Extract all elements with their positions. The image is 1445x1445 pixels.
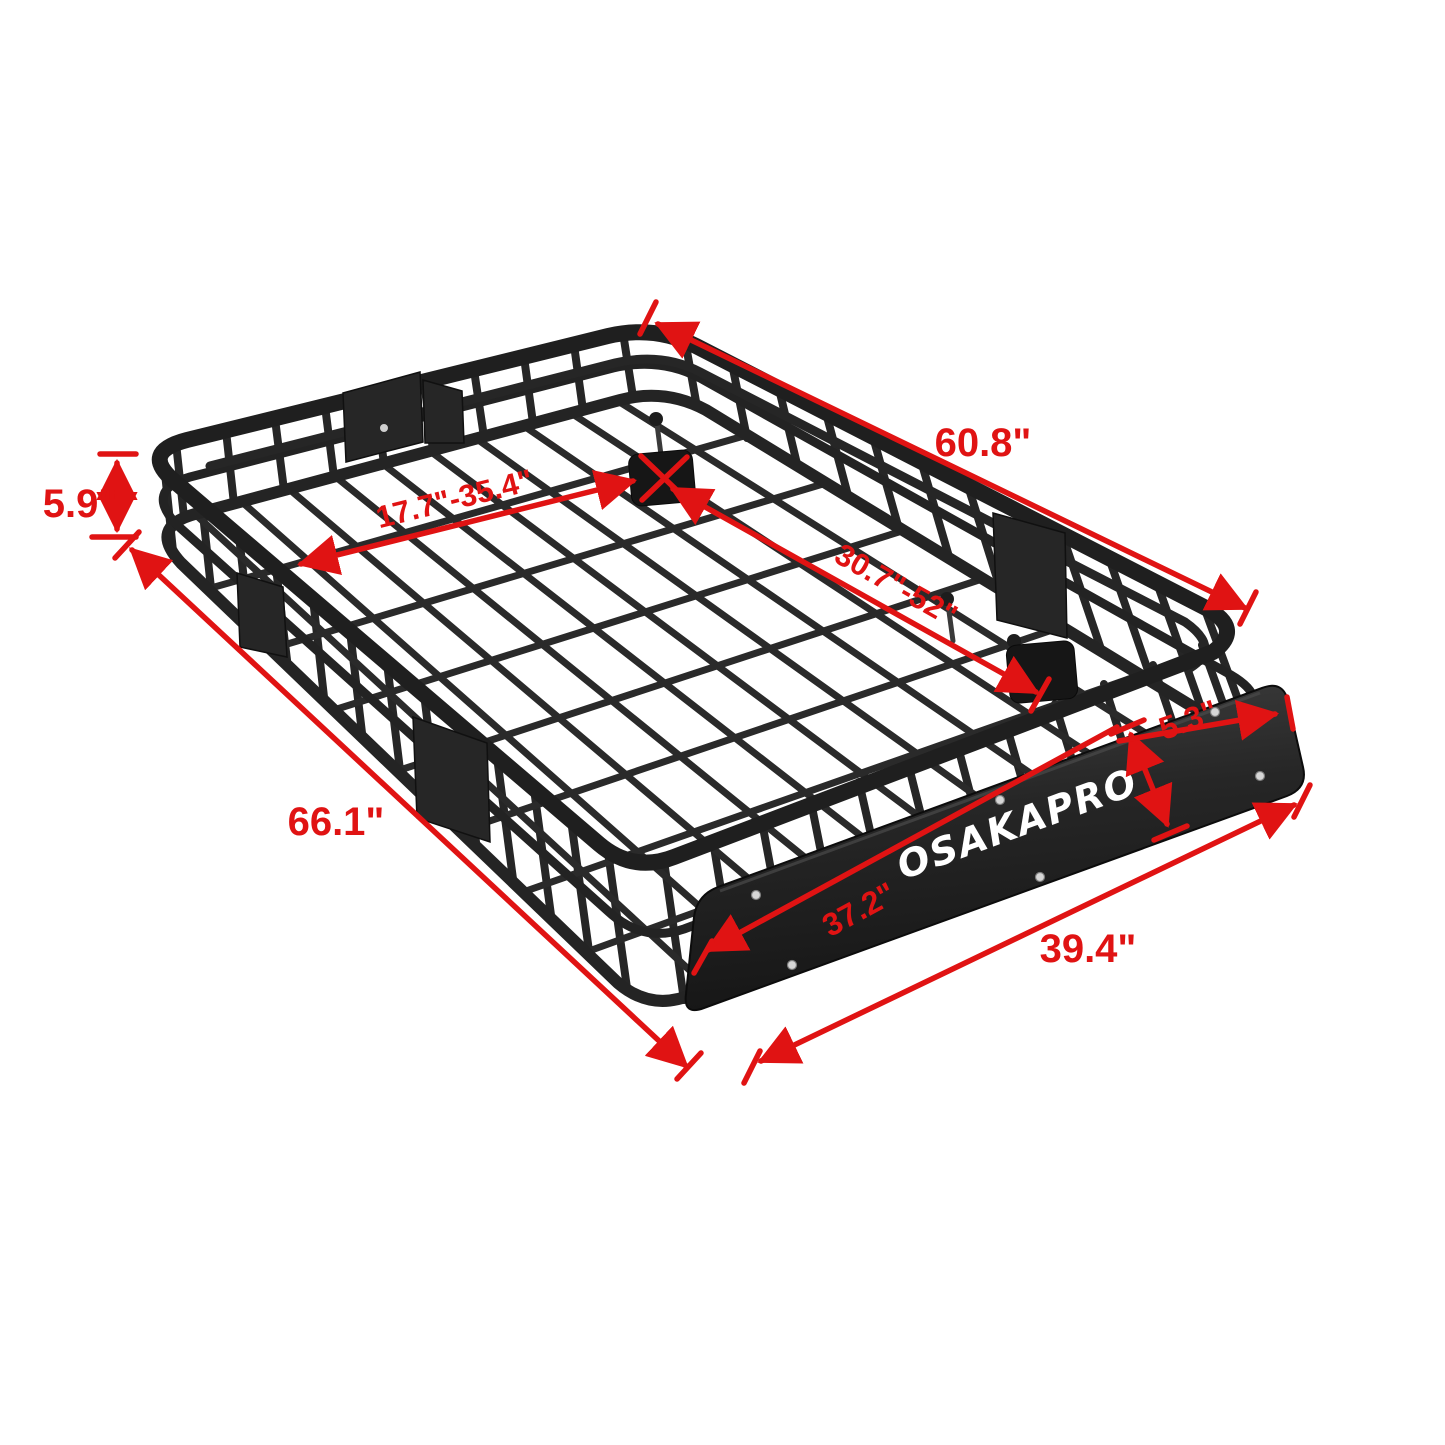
mounting-bracket — [343, 372, 423, 462]
fairing-screw — [996, 796, 1005, 805]
dimension-top-length: 60.8" — [640, 302, 1256, 624]
fairing-screw — [752, 891, 761, 900]
dimension-label: 5.9" — [43, 482, 118, 526]
dimension-tick — [744, 1051, 760, 1083]
thumb-screw — [649, 412, 663, 426]
mounting-bracket — [237, 573, 287, 657]
roof-rack-diagram: OSAKAPRO 60.8" 5.9" 66.1" 17.7"-35.4" 30… — [0, 0, 1445, 1445]
mounting-bracket — [993, 513, 1067, 638]
product-dimension-image: OSAKAPRO 60.8" 5.9" 66.1" 17.7"-35.4" 30… — [0, 0, 1445, 1445]
bracket-bolt — [380, 424, 388, 432]
dimension-label: 39.4" — [1040, 927, 1137, 971]
mounting-bracket — [423, 380, 464, 443]
fairing-screw — [1256, 772, 1265, 781]
dimension-tick — [677, 1053, 701, 1079]
dimension-basket-height: 5.9" — [43, 454, 136, 537]
dimension-label: 60.8" — [935, 421, 1032, 465]
fairing-screw — [788, 961, 797, 970]
dimension-label: 66.1" — [288, 800, 385, 844]
dimension-side-length: 66.1" — [115, 532, 701, 1079]
fairing-screw — [1036, 873, 1045, 882]
